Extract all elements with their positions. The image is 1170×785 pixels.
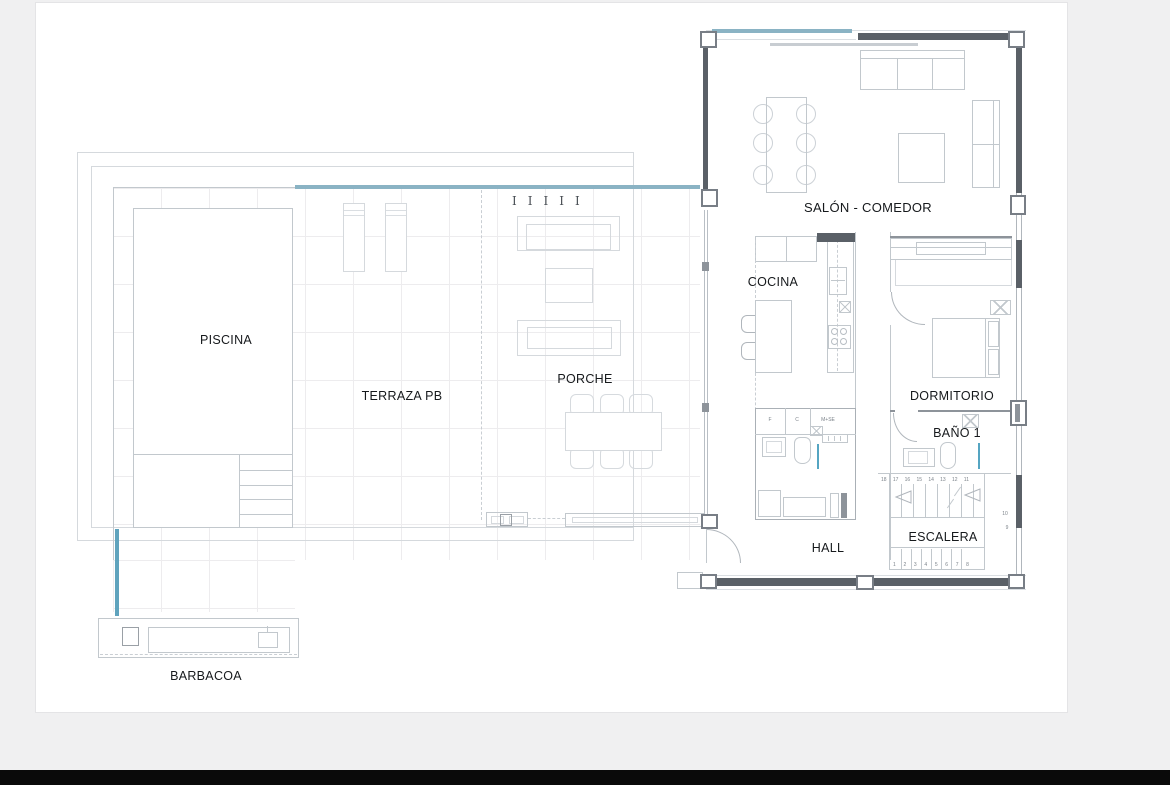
column bbox=[700, 574, 717, 589]
stair-number: 14 bbox=[928, 477, 934, 483]
stair-number: 13 bbox=[940, 477, 946, 483]
terrace-edge-line bbox=[113, 187, 295, 188]
bed-pillow bbox=[988, 321, 999, 347]
glass-mullion bbox=[702, 403, 709, 412]
stair-number: 5 bbox=[935, 562, 938, 568]
salon-sofa-divider bbox=[932, 58, 933, 89]
pool-step-line bbox=[239, 485, 292, 486]
stair-number: 4 bbox=[924, 562, 927, 568]
column bbox=[1008, 31, 1025, 48]
room-label-salon: SALÓN - COMEDOR bbox=[798, 200, 938, 215]
partition-bedroom-west bbox=[890, 325, 891, 560]
kitchen-cabinet-divider bbox=[786, 236, 787, 262]
stair-lower-landing-line bbox=[889, 547, 985, 548]
entry-door-arc bbox=[706, 529, 741, 563]
wardrobe-top-line bbox=[890, 236, 1012, 238]
stair-number: 8 bbox=[966, 562, 969, 568]
utility-shelf bbox=[822, 434, 848, 443]
salon-glazing-line bbox=[712, 29, 852, 33]
utility-door-frame bbox=[830, 493, 839, 518]
kitchen-top-wall bbox=[817, 233, 855, 242]
utility-shelf-tick bbox=[828, 436, 829, 441]
wall-left-glass bbox=[704, 210, 708, 514]
sun-lounger-headrest-line bbox=[344, 215, 364, 216]
barbecue-faucet-icon bbox=[267, 626, 268, 633]
pool-step-divider bbox=[239, 455, 240, 527]
utility-bench bbox=[783, 497, 826, 517]
utility-toilet bbox=[794, 437, 811, 464]
bottom-black-bar bbox=[0, 770, 1170, 785]
stair-north-wall bbox=[878, 473, 1011, 474]
pool-basin bbox=[133, 208, 293, 455]
barbecue-dashed-edge bbox=[100, 654, 297, 655]
kitchen-counter-centerline bbox=[837, 240, 838, 371]
glass-mullion bbox=[702, 262, 709, 271]
kitchen-island bbox=[755, 300, 792, 373]
pool-step-line bbox=[239, 514, 292, 515]
sun-lounger-headrest-line bbox=[386, 215, 406, 216]
column bbox=[1008, 574, 1025, 589]
utility-label-f: F bbox=[763, 417, 777, 423]
ac-unit-icon bbox=[990, 300, 1011, 315]
room-label-cocina: COCINA bbox=[733, 275, 813, 289]
terrace-porch-divider bbox=[481, 190, 482, 520]
porch-low-wall-inner bbox=[572, 517, 698, 523]
stove-burner-icon bbox=[831, 328, 838, 335]
wardrobe-sliding-door bbox=[916, 242, 986, 255]
room-label-bano: BAÑO 1 bbox=[917, 426, 997, 440]
stove-burner-icon bbox=[840, 338, 847, 345]
column bbox=[701, 189, 718, 207]
utility-cabinet-low bbox=[758, 490, 781, 517]
barbecue-sink bbox=[258, 632, 278, 648]
stair-number-side: 10 bbox=[999, 511, 1011, 517]
stair-number: 18 bbox=[881, 477, 887, 483]
sun-lounger-headrest-line bbox=[386, 210, 406, 211]
salon-slider-track bbox=[706, 39, 856, 40]
wall-top bbox=[858, 33, 1008, 40]
stair-tread-line bbox=[913, 484, 914, 517]
room-label-barbacoa: BARBACOA bbox=[146, 669, 266, 683]
room-label-dormitorio: DORMITORIO bbox=[897, 389, 1007, 403]
utility-door-leaf bbox=[841, 493, 847, 518]
terrace-left-edge bbox=[113, 187, 114, 560]
porch-sofa-seat bbox=[527, 327, 612, 349]
stair-tread-line bbox=[937, 484, 938, 517]
wall-right-segment bbox=[1016, 475, 1022, 528]
sun-lounger-headrest-line bbox=[344, 210, 364, 211]
kitchen-fridge-line bbox=[831, 280, 845, 281]
floor-plan: PISCINA TERRAZA PB IIIII PORCHE BARBACOA bbox=[0, 0, 1170, 785]
porch-column-markers-icon: IIIII bbox=[512, 194, 591, 208]
stair-number: 15 bbox=[916, 477, 922, 483]
outdoor-dining-table bbox=[565, 412, 662, 451]
stair-number: 6 bbox=[945, 562, 948, 568]
salon-sofa-back-line bbox=[861, 58, 964, 59]
stair-numbers-bottom: 1 2 3 4 5 6 7 8 bbox=[893, 562, 969, 568]
stair-number: 16 bbox=[905, 477, 911, 483]
bano-door-arc bbox=[893, 413, 917, 442]
utility-screen-line bbox=[817, 444, 819, 469]
room-label-porche: PORCHE bbox=[535, 372, 635, 386]
bed-headboard-line bbox=[985, 318, 986, 378]
pool-shallow-area bbox=[133, 454, 293, 528]
utility-shelf-tick bbox=[840, 436, 841, 441]
stair-tread-line bbox=[949, 484, 950, 517]
salon-side-sofa-line bbox=[973, 144, 999, 145]
wall-left-segment bbox=[703, 48, 708, 193]
stair-number: 11 bbox=[964, 477, 969, 483]
column-core bbox=[1015, 404, 1020, 422]
sun-lounger bbox=[343, 203, 365, 272]
salon-sofa-divider bbox=[897, 58, 898, 89]
wall-right-segment bbox=[1016, 48, 1022, 193]
terrace-paving-grid-lower bbox=[113, 560, 295, 612]
porch-sofa-seat bbox=[526, 224, 611, 250]
terrace-water-feature-line bbox=[115, 529, 119, 616]
bed-pillow bbox=[988, 349, 999, 375]
salon-coffee-table bbox=[898, 133, 945, 183]
utility-label-mse: M+SE bbox=[816, 417, 840, 423]
sun-lounger bbox=[385, 203, 407, 272]
room-label-escalera: ESCALERA bbox=[893, 530, 993, 544]
kitchen-sink-icon bbox=[839, 301, 851, 313]
terrace-glazing-line bbox=[295, 185, 700, 189]
utility-sink-basin bbox=[766, 441, 782, 453]
stair-landing-line bbox=[889, 517, 985, 518]
utility-shelf-tick bbox=[834, 436, 835, 441]
stair-number: 12 bbox=[952, 477, 958, 483]
column bbox=[700, 31, 717, 48]
column bbox=[1010, 195, 1026, 215]
salon-slider-pane bbox=[770, 43, 918, 46]
barbecue-grill-box bbox=[122, 627, 139, 646]
stair-number-side: 9 bbox=[1002, 525, 1012, 531]
utility-cabinet-divider bbox=[785, 408, 786, 434]
pool-step-line bbox=[239, 499, 292, 500]
wall-bano-north-stub bbox=[890, 410, 895, 412]
porch-wall-dashed-link bbox=[528, 518, 565, 519]
stove-burner-icon bbox=[831, 338, 838, 345]
kitchen-open-boundary bbox=[755, 240, 756, 298]
room-label-hall: HALL bbox=[788, 541, 868, 555]
stair-number: 7 bbox=[956, 562, 959, 568]
porch-coffee-table bbox=[545, 268, 593, 303]
wall-right-segment bbox=[1016, 240, 1022, 288]
wardrobe-shelf bbox=[895, 260, 1012, 286]
stair-numbers-top: 18 17 16 15 14 13 12 11 bbox=[881, 477, 969, 483]
bedroom-door-arc bbox=[891, 292, 925, 325]
wall-bano-north bbox=[918, 410, 1012, 412]
utility-label-c: C bbox=[790, 417, 804, 423]
stair-tread-line bbox=[925, 484, 926, 517]
stair-direction-arrow-icon bbox=[962, 487, 982, 503]
entry-door-leaf bbox=[706, 529, 707, 563]
room-label-piscina: PISCINA bbox=[166, 333, 286, 347]
stair-number: 3 bbox=[914, 562, 917, 568]
bano-sink-basin bbox=[908, 451, 928, 464]
partition-bedroom-west bbox=[890, 232, 891, 292]
planter-center-post bbox=[500, 514, 512, 526]
stair-direction-arrow-icon bbox=[893, 489, 913, 505]
pool-step-line bbox=[239, 470, 292, 471]
column bbox=[701, 514, 718, 529]
bano-toilet bbox=[940, 442, 956, 469]
dining-table bbox=[766, 97, 807, 193]
stove-burner-icon bbox=[840, 328, 847, 335]
room-label-terraza: TERRAZA PB bbox=[342, 389, 462, 403]
stair-number: 1 bbox=[893, 562, 896, 568]
column bbox=[856, 575, 874, 590]
salon-sofa bbox=[860, 50, 965, 90]
stair-number: 2 bbox=[903, 562, 906, 568]
kitchen-fridge bbox=[829, 267, 847, 295]
bano-shower-screen-line bbox=[978, 443, 980, 469]
stair-number: 17 bbox=[893, 477, 899, 483]
